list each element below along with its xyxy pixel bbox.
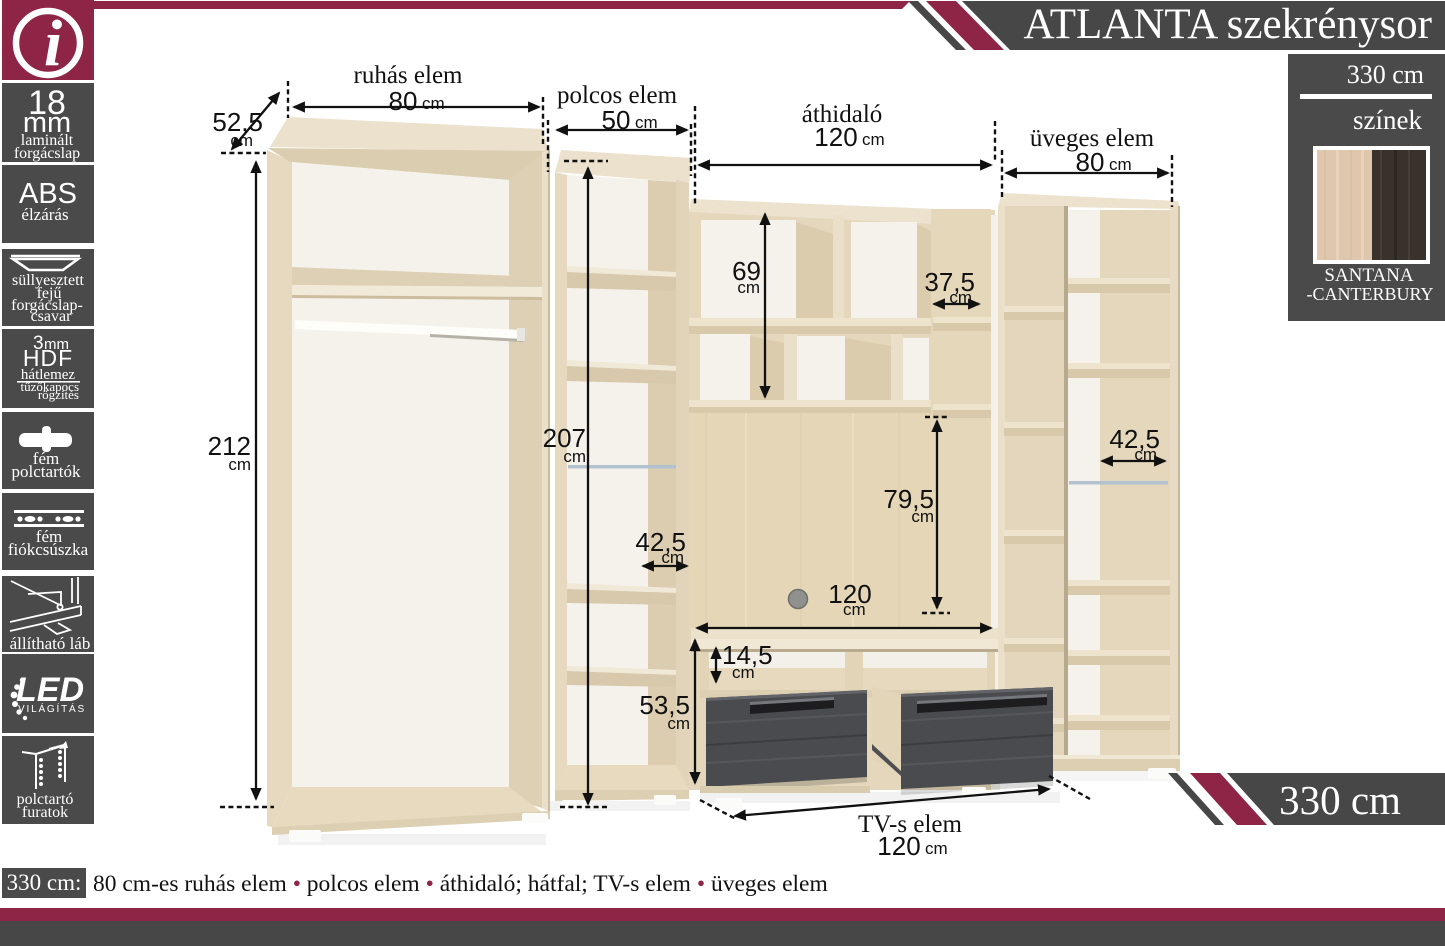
svg-text:330 cm: 330 cm <box>1279 777 1401 823</box>
svg-text:80 cm-es ruhás elem • polcos e: 80 cm-es ruhás elem • polcos elem • áthi… <box>93 871 828 897</box>
svg-text:cm: cm <box>422 94 445 113</box>
svg-text:80: 80 <box>389 86 418 116</box>
svg-text:120: 120 <box>877 831 920 861</box>
svg-text:cm: cm <box>1109 155 1132 174</box>
svg-text:cm: cm <box>843 600 866 619</box>
svg-text:cm: cm <box>230 131 253 150</box>
svg-text:cm: cm <box>862 130 885 149</box>
svg-text:csavar: csavar <box>31 308 73 325</box>
svg-text:színek: színek <box>1353 105 1422 135</box>
svg-text:i: i <box>44 7 63 80</box>
svg-text:SANTANA: SANTANA <box>1324 265 1414 286</box>
svg-text:ruhás elem: ruhás elem <box>354 62 464 89</box>
svg-text:cm: cm <box>911 507 934 526</box>
svg-text:rögzítés: rögzítés <box>38 387 79 402</box>
svg-text:cm: cm <box>228 455 251 474</box>
svg-text:furatok: furatok <box>22 804 68 821</box>
svg-text:cm: cm <box>661 548 684 567</box>
svg-text:cm: cm <box>949 288 972 307</box>
svg-text:330 cm:: 330 cm: <box>7 870 82 895</box>
svg-text:80: 80 <box>1076 147 1105 177</box>
svg-text:cm: cm <box>635 113 658 132</box>
svg-text:50: 50 <box>602 105 631 135</box>
svg-text:állítható láb: állítható láb <box>10 634 91 653</box>
svg-text:cm: cm <box>737 278 760 297</box>
svg-text:-CANTERBURY: -CANTERBURY <box>1306 284 1433 304</box>
svg-text:120: 120 <box>814 122 857 152</box>
svg-text:cm: cm <box>732 663 755 682</box>
svg-text:polctartók: polctartók <box>12 462 81 481</box>
svg-text:330 cm: 330 cm <box>1347 60 1424 89</box>
svg-text:VILÁGÍTÁS: VILÁGÍTÁS <box>18 702 86 715</box>
svg-text:cm: cm <box>1134 445 1157 464</box>
svg-text:élzárás: élzárás <box>21 205 68 224</box>
svg-text:fiókcsúszka: fiókcsúszka <box>8 540 89 559</box>
svg-text:cm: cm <box>667 714 690 733</box>
svg-text:forgácslap: forgácslap <box>14 145 80 162</box>
svg-text:ATLANTA szekrénysor: ATLANTA szekrénysor <box>1023 1 1432 48</box>
svg-text:cm: cm <box>925 839 948 858</box>
svg-text:cm: cm <box>563 447 586 466</box>
